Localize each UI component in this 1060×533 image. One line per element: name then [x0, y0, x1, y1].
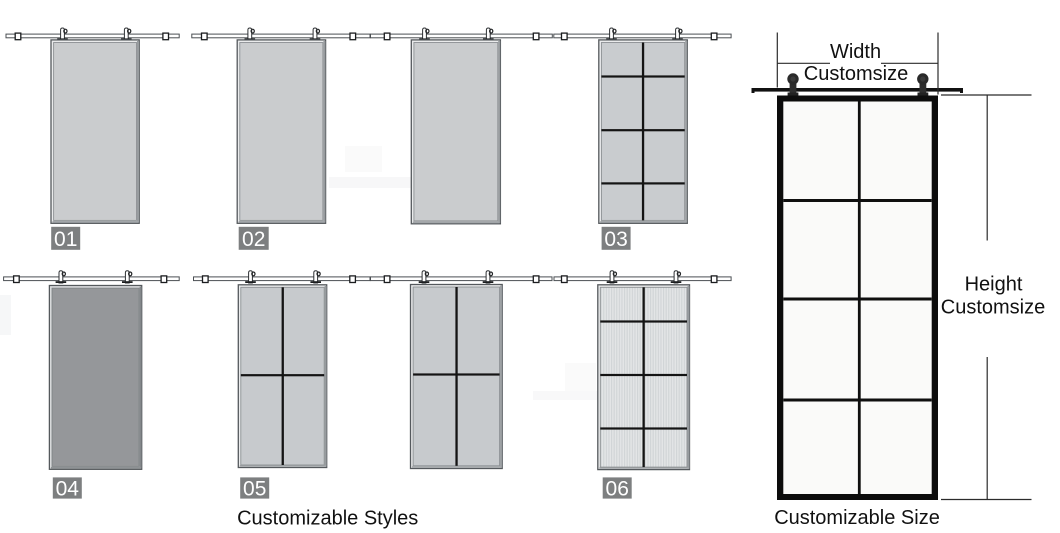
svg-text:Width: Width: [830, 41, 881, 63]
svg-text:03: 03: [604, 228, 627, 251]
svg-text:05: 05: [243, 477, 266, 500]
svg-text:Customizable Size: Customizable Size: [774, 507, 940, 529]
svg-text:Customsize: Customsize: [804, 63, 908, 85]
svg-text:06: 06: [606, 477, 629, 500]
svg-text:Customizable Styles: Customizable Styles: [237, 508, 418, 530]
svg-text:01: 01: [54, 228, 77, 251]
svg-text:Height: Height: [965, 274, 1023, 296]
svg-text:Customsize: Customsize: [941, 297, 1045, 319]
svg-text:02: 02: [242, 228, 265, 251]
svg-text:04: 04: [56, 477, 80, 500]
